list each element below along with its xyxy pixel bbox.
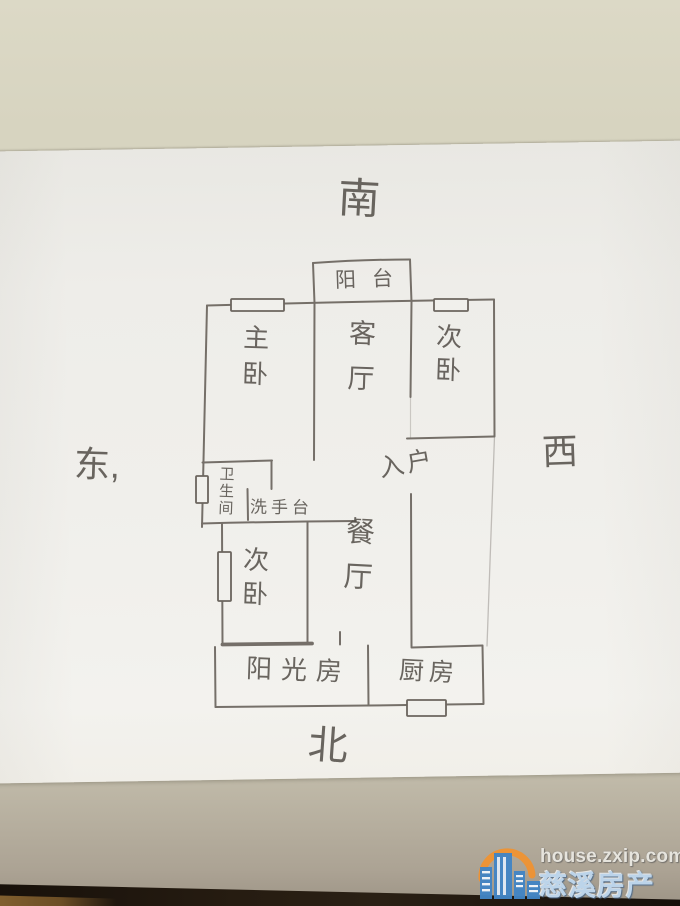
room-label-kitchen: 厨房 [398,658,459,686]
compass-east-label: 东, [73,446,120,484]
window-symbol-master [231,299,284,311]
watermark-buildings-logo-icon [472,841,544,905]
window-symbol-bathroom [196,476,208,503]
floorplan-photo: 南 北 东, 西 阳台 客厅 主卧 次卧 入户 卫生间 洗手台 次卧 餐厅 阳光… [0,0,680,906]
window-symbol-bedroom-sw [218,552,231,601]
room-label-bathroom: 卫生间 [217,466,234,517]
window-symbols [196,299,468,716]
room-label-washbasin: 洗手台 [250,498,313,516]
watermark-site-name: 慈溪房产网 [539,864,680,906]
window-symbol-bedroom-ne [434,299,468,311]
compass-west-label: 西 [541,433,578,470]
room-label-bedroom-ne: 次卧 [433,323,461,390]
room-label-sunroom: 阳光房 [246,655,352,685]
room-label-bedroom-sw: 次卧 [240,546,268,615]
room-label-master: 主卧 [240,324,268,397]
room-label-balcony: 阳台 [335,268,410,292]
window-symbol-kitchen [407,700,446,716]
compass-south-label: 南 [337,177,381,221]
watermark: house.zxip.com 慈溪房产网 [468,835,680,906]
room-label-dining: 餐厅 [339,515,373,606]
room-label-living: 客厅 [343,319,373,410]
compass-north-label: 北 [307,725,350,768]
